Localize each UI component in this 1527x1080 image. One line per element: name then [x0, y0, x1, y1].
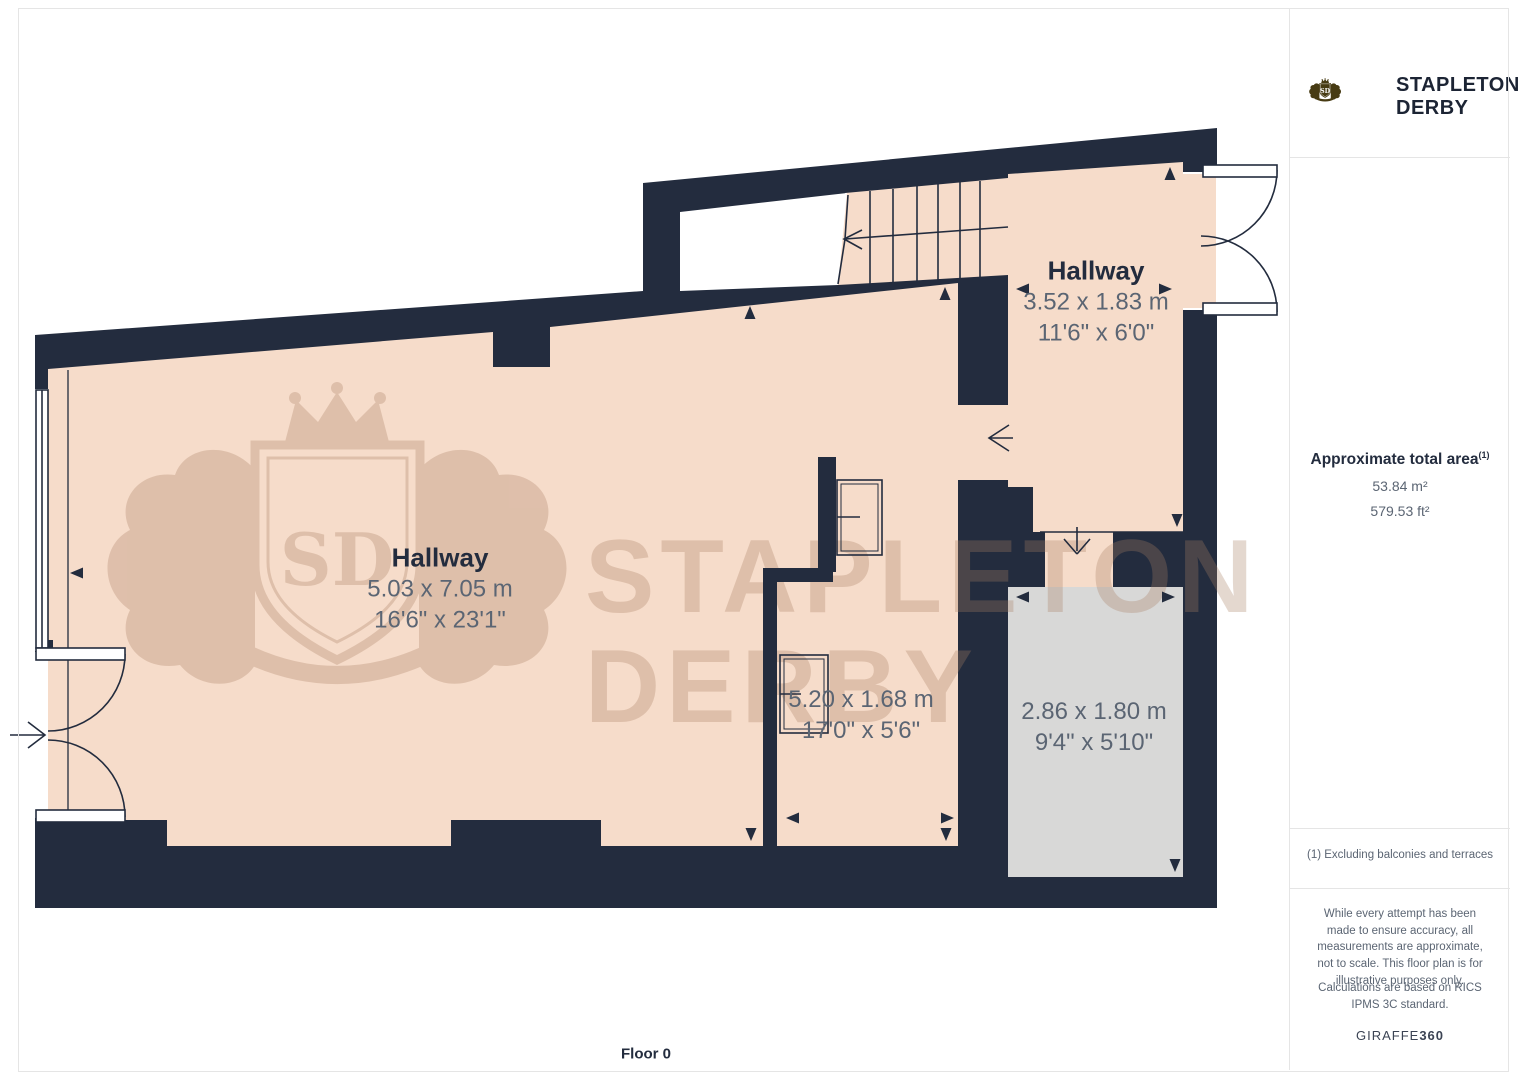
vendor-suffix: 360	[1419, 1028, 1444, 1043]
room-dimension-metric: 5.03 x 7.05 m	[367, 574, 512, 605]
vendor-name: GIRAFFE	[1356, 1028, 1419, 1043]
room-dimension-imperial: 16'6" x 23'1"	[367, 605, 512, 636]
stapleton-derby-crest-icon: SD	[1296, 50, 1396, 130]
total-area-metric: 53.84 m²	[1290, 478, 1510, 494]
divider	[1290, 888, 1510, 889]
watermark-text-line1: STAPLETON	[585, 519, 1259, 635]
brand-name-line2: DERBY	[1396, 97, 1520, 120]
room-dimension-imperial: 11'6" x 6'0"	[1023, 318, 1168, 349]
info-sidebar: SD STAPLETON DERBY Approximate total are…	[1289, 8, 1510, 1070]
footnote-text: (1) Excluding balconies and terraces	[1290, 849, 1510, 861]
room-name: Hallway	[367, 543, 512, 574]
disclaimer-accuracy: While every attempt has been made to ens…	[1310, 906, 1490, 989]
floor-passage	[958, 405, 1008, 480]
total-area-title-text: Approximate total area	[1311, 451, 1479, 468]
room-label-gray-room: 2.86 x 1.80 m 9'4" x 5'10"	[1021, 696, 1166, 758]
room-name: Hallway	[1023, 256, 1168, 287]
floor-right-door-gap	[1183, 174, 1216, 308]
room-label-upper-hallway: Hallway 3.52 x 1.83 m 11'6" x 6'0"	[1023, 256, 1168, 349]
room-dimension-metric: 2.86 x 1.80 m	[1021, 696, 1166, 727]
floor-stairs	[838, 178, 1008, 285]
room-dimension-metric: 3.52 x 1.83 m	[1023, 287, 1168, 318]
svg-text:SD: SD	[1320, 88, 1331, 95]
brand-name: STAPLETON DERBY	[1396, 74, 1520, 120]
room-label-corridor: 5.20 x 1.68 m 17'0" x 5'6"	[788, 684, 933, 746]
room-dimension-metric: 5.20 x 1.68 m	[788, 684, 933, 715]
total-area-block: Approximate total area(1) 53.84 m² 579.5…	[1290, 450, 1510, 519]
floor-selector-label: Floor 0	[621, 1046, 671, 1063]
room-dimension-imperial: 9'4" x 5'10"	[1021, 727, 1166, 758]
divider	[1290, 157, 1510, 158]
room-dimension-imperial: 17'0" x 5'6"	[788, 715, 933, 746]
disclaimer-standard: Calculations are based on RICS IPMS 3C s…	[1310, 980, 1490, 1013]
total-area-title: Approximate total area(1)	[1290, 450, 1510, 469]
brand-name-line1: STAPLETON	[1396, 74, 1520, 97]
room-label-main-hallway: Hallway 5.03 x 7.05 m 16'6" x 23'1"	[367, 543, 512, 636]
brand-logo: SD STAPLETON DERBY	[1296, 50, 1506, 130]
window-left-wall	[36, 390, 48, 648]
total-area-footnote-marker: (1)	[1478, 450, 1489, 460]
total-area-imperial: 579.53 ft²	[1290, 503, 1510, 519]
vendor-logo: GIRAFFE360	[1290, 1028, 1510, 1043]
divider	[1290, 828, 1510, 829]
